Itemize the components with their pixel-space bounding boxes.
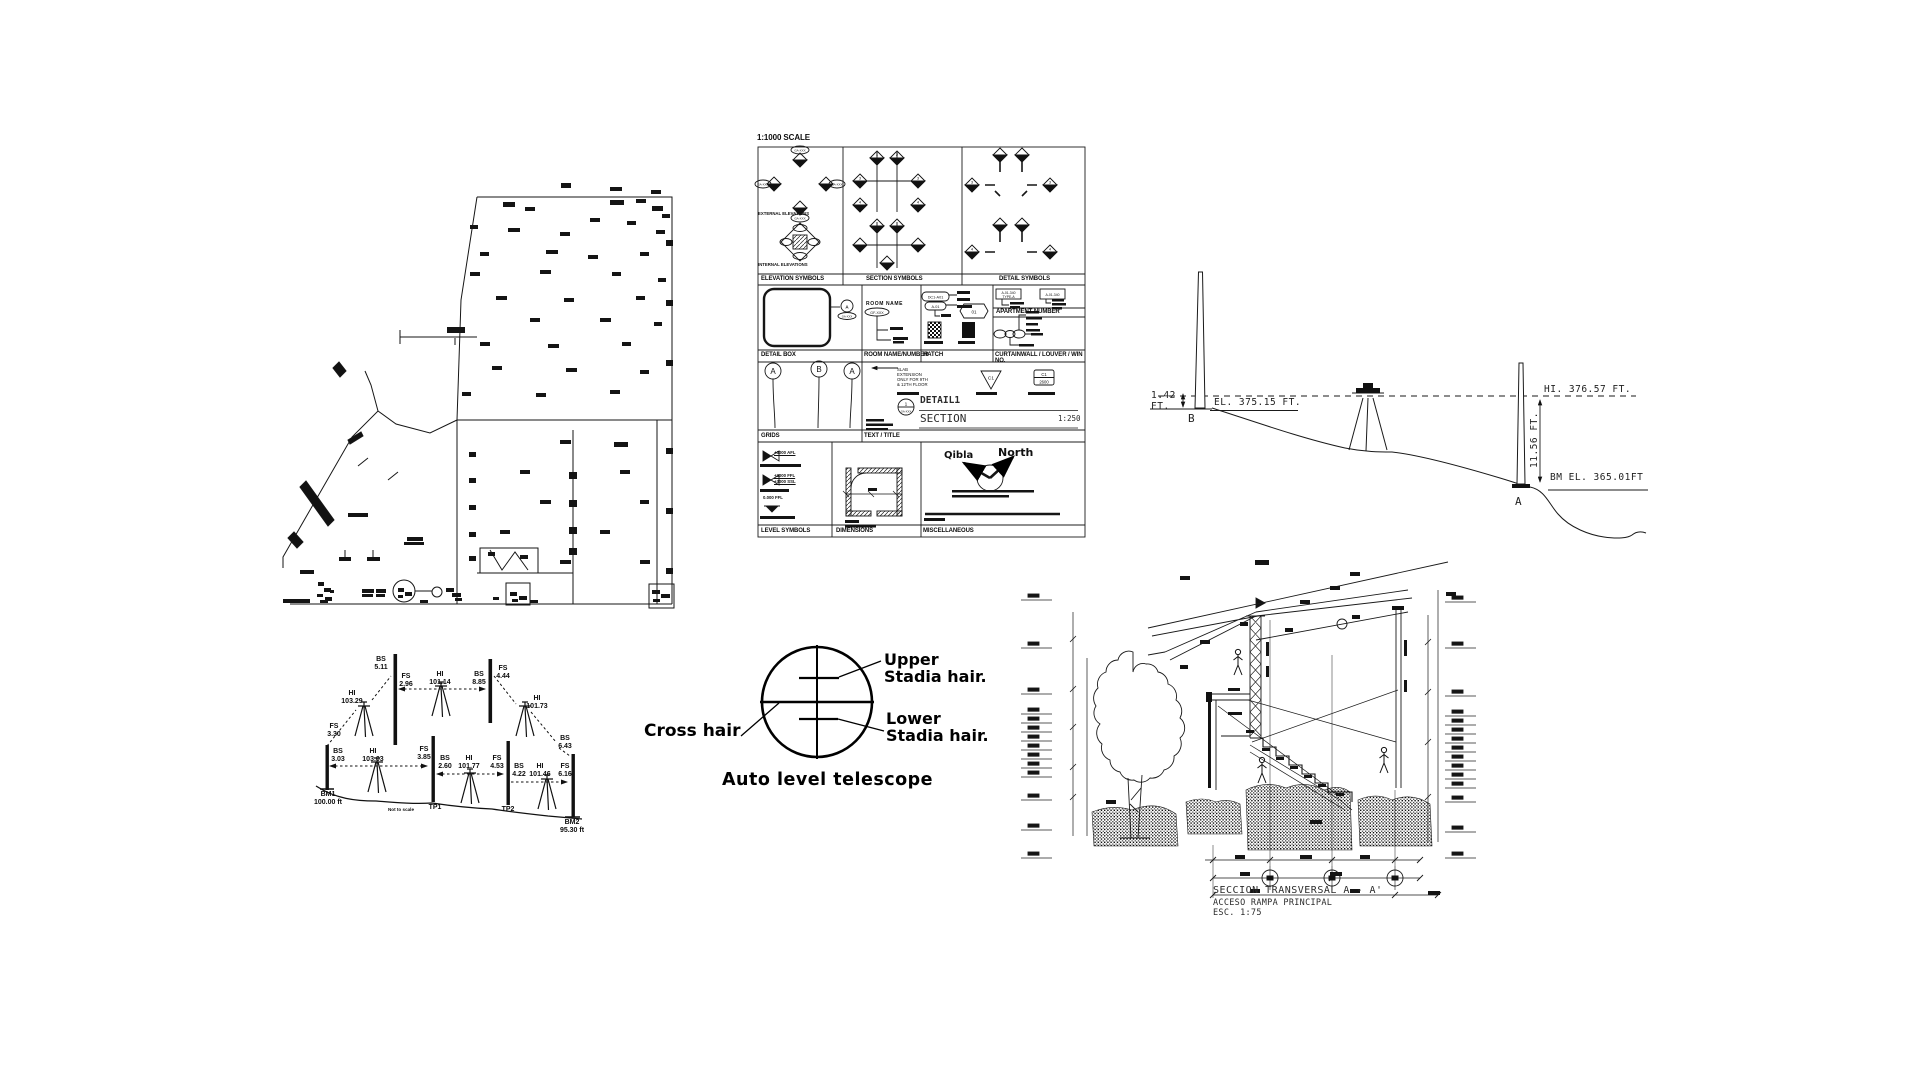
- plan-annotation-marks: [283, 183, 673, 603]
- svg-text:GA-XXX: GA-XXX: [901, 410, 912, 414]
- survey-hi-label: HI. 376.57 FT.: [1544, 384, 1631, 395]
- cross-section-drawing: [1021, 560, 1476, 898]
- svg-text:A: A: [770, 367, 776, 376]
- legend-level-ffl0-label: 0.000 FFL: [763, 496, 783, 501]
- legend-external-elevations-label: EXTERNAL ELEVATIONS: [758, 212, 809, 217]
- legend-level-afl-label: +3000 AFL: [774, 451, 795, 456]
- legend-caption-elevation: ELEVATION SYMBOLS: [761, 276, 824, 282]
- leveling-tp1-label: TP1: [423, 804, 447, 812]
- telescope-caption: Auto level telescope: [722, 770, 933, 790]
- level-marker-column-left: [1021, 594, 1052, 858]
- svg-text:A-01: A-01: [931, 305, 939, 309]
- svg-text:C1: C1: [1041, 372, 1047, 377]
- leveling-upper-fs2: FS 2.96: [389, 673, 423, 688]
- svg-text:GA-XXX: GA-XXX: [794, 149, 805, 153]
- svg-text:A: A: [849, 367, 855, 376]
- site-plan-drawing: [283, 183, 674, 608]
- svg-text:C1: C1: [988, 376, 994, 382]
- survey-reading-b-value: 1.42: [1151, 390, 1176, 401]
- survey-elevation-label: EL. 375.15 FT.: [1214, 397, 1301, 408]
- legend-caption-curtainwall: CURTAINWALL / LOUVER / WIN NO.: [995, 352, 1085, 364]
- svg-text:A: A: [845, 305, 849, 310]
- survey-reading-b-unit: FT.: [1151, 401, 1170, 412]
- svg-text:A-01-340: A-01-340: [1046, 293, 1060, 297]
- svg-text:GA-XXX: GA-XXX: [794, 217, 805, 221]
- tree-canopy: [1094, 651, 1185, 782]
- leveling-upper-fs1: FS 3.30: [317, 723, 351, 738]
- drawing-sheet-canvas: GA-XXX GA-XXX GA-XXX GA-XXX A A A 1 2 3 …: [0, 0, 1920, 1080]
- svg-text:3: 3: [917, 176, 920, 181]
- legend-caption-section: SECTION SYMBOLS: [866, 276, 923, 282]
- section-scale: ESC. 1:75: [1213, 908, 1262, 918]
- leveling-bm1-label: BM1 100.00 ft: [308, 791, 348, 806]
- svg-text:GF-XXX: GF-XXX: [870, 311, 884, 315]
- level-marker-column-right: [1445, 596, 1476, 858]
- svg-text:1: 1: [905, 402, 908, 408]
- svg-text:3: 3: [859, 176, 862, 181]
- linework-layer: GA-XXX GA-XXX GA-XXX GA-XXX A A A 1 2 3 …: [0, 0, 1920, 1080]
- svg-text:3: 3: [1049, 180, 1052, 185]
- telescope-reticle-drawing: [741, 645, 884, 759]
- svg-text:4: 4: [859, 200, 862, 205]
- legend-detail1-label: DETAIL1: [920, 395, 960, 406]
- legend-caption-dimensions: DIMENSIONS: [836, 528, 873, 534]
- svg-text:2600: 2600: [1039, 380, 1049, 385]
- legend-caption-hatch: HATCH: [923, 352, 943, 358]
- mast-truss: [1246, 598, 1265, 738]
- leveling-lower-hi1: HI 103.03: [356, 748, 390, 763]
- telescope-upper-stadia-label: Upper Stadia hair.: [884, 651, 987, 685]
- legend-caption-text-title: TEXT / TITLE: [864, 433, 900, 439]
- survey-point-b-label: B: [1188, 412, 1195, 425]
- survey-reading-a-label: 11.56 FT.: [1529, 412, 1540, 468]
- section-title: SECCION TRANSVERSAL A - A': [1213, 885, 1383, 896]
- svg-text:TYPE-A: TYPE-A: [1002, 295, 1015, 299]
- svg-text:GA-XXX: GA-XXX: [842, 315, 853, 319]
- leveling-lower-fs3: FS 6.16: [548, 763, 582, 778]
- legend-slab-note: SLAB EXTENSION ONLY FOR 9TH & 12TH FLOOR: [897, 368, 928, 388]
- leveling-tp2-label: TP2: [496, 806, 520, 814]
- svg-text:4: 4: [917, 200, 920, 205]
- svg-text:3: 3: [971, 180, 974, 185]
- legend-caption-apartment: APARTMENT NUMBER: [996, 309, 1060, 315]
- leveling-upper-fs3: FS 4.44: [486, 665, 520, 680]
- svg-text:01: 01: [971, 310, 977, 315]
- legend-caption-room: ROOM NAME/NUMBER: [864, 352, 928, 358]
- legend-caption-detail: DETAIL SYMBOLS: [999, 276, 1050, 282]
- legend-title: 1:1000 SCALE: [757, 133, 810, 142]
- legend-scale-label: 1:250: [1058, 414, 1081, 423]
- leveling-lower-bs1: BS 3.03: [321, 748, 355, 763]
- legend-level-ssl-label: +3000 SSL: [774, 480, 796, 485]
- leveling-note: Not to scale: [379, 806, 423, 814]
- legend-room-name-label: ROOM NAME: [866, 301, 903, 307]
- leveling-upper-bs1: BS 5.11: [364, 656, 398, 671]
- section-subtitle: ACCESO RAMPA PRINCIPAL: [1213, 898, 1332, 908]
- leveling-upper-hi3: HI 101.73: [520, 695, 554, 710]
- ground-hatch: [1092, 784, 1432, 850]
- telescope-lower-stadia-label: Lower Stadia hair.: [886, 710, 989, 744]
- svg-text:GA-XXX: GA-XXX: [831, 183, 842, 187]
- legend-section-label: SECTION: [920, 412, 966, 425]
- leveling-upper-hi1: HI 103.29: [335, 690, 369, 705]
- legend-caption-detail-box: DETAIL BOX: [761, 352, 796, 358]
- leveling-bm2-label: BM2 95.30 ft: [552, 819, 592, 834]
- leveling-upper-hi2: HI 101.14: [423, 671, 457, 686]
- leveling-upper-bs3: BS 6.43: [548, 735, 582, 750]
- legend-caption-level: LEVEL SYMBOLS: [761, 528, 810, 534]
- legend-north-label: North: [998, 446, 1033, 459]
- legend-qibla-label: Qibla: [944, 450, 973, 461]
- survey-point-a-label: A: [1515, 495, 1522, 508]
- svg-text:B: B: [816, 365, 821, 374]
- legend-internal-elevations-label: INTERNAL ELEVATIONS: [758, 263, 808, 268]
- legend-caption-grids: GRIDS: [761, 433, 780, 439]
- telescope-cross-hair-label: Cross hair: [644, 721, 740, 741]
- svg-text:4: 4: [1049, 247, 1052, 252]
- survey-bm-label: BM EL. 365.01FT: [1550, 472, 1643, 483]
- legend-caption-misc: MISCELLANEOUS: [923, 528, 974, 534]
- svg-text:4: 4: [971, 247, 974, 252]
- svg-text:DC1-A01: DC1-A01: [928, 296, 944, 300]
- svg-text:GA-XXX: GA-XXX: [757, 183, 768, 187]
